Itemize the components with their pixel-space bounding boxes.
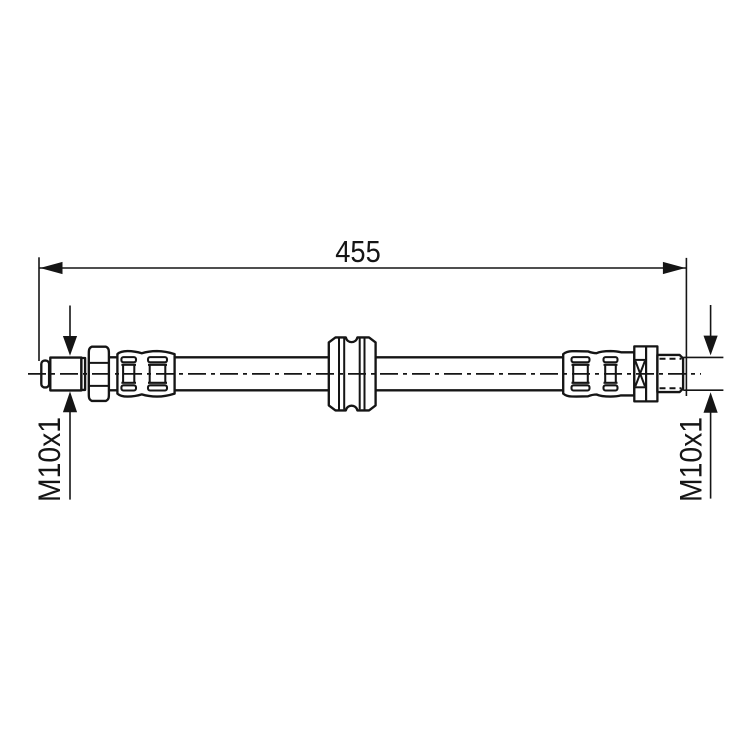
svg-text:M10x1: M10x1 (31, 417, 67, 502)
svg-text:M10x1: M10x1 (672, 417, 708, 502)
svg-text:455: 455 (335, 234, 381, 269)
